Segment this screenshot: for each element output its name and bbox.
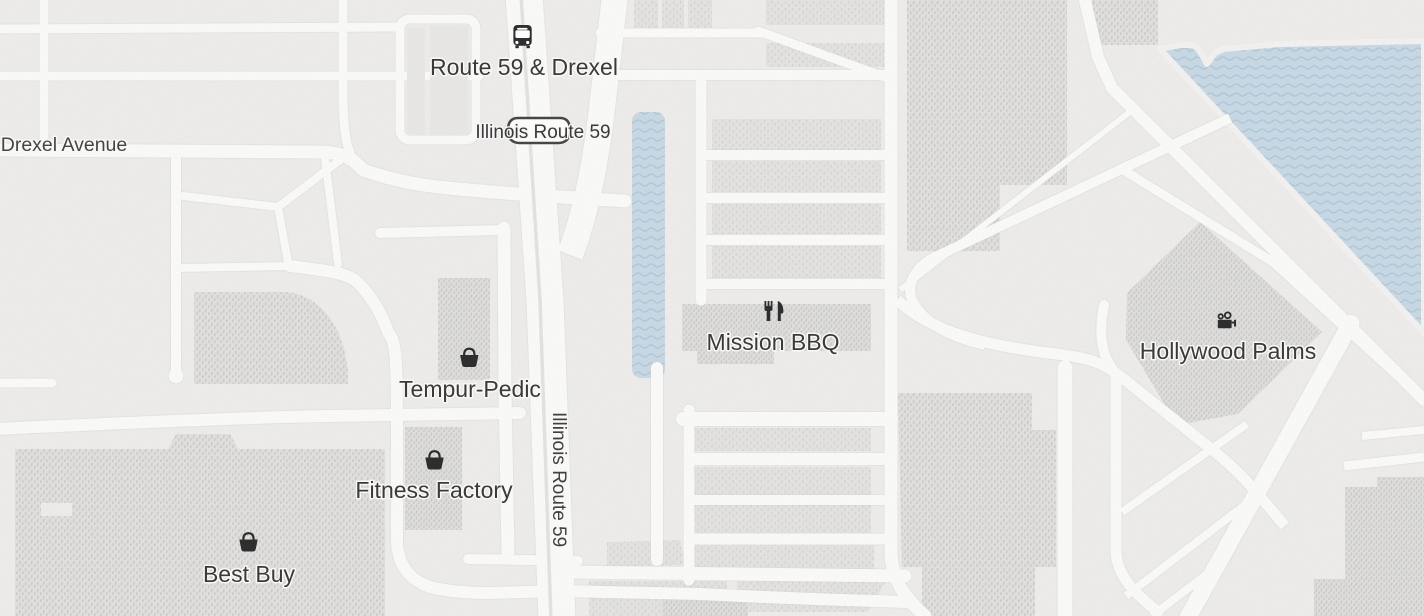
svg-text:Hollywood Palms: Hollywood Palms: [1140, 338, 1316, 364]
svg-text:Mission BBQ: Mission BBQ: [707, 329, 840, 355]
svg-text:Tempur-Pedic: Tempur-Pedic: [399, 376, 541, 402]
svg-text:Route 59 & Drexel: Route 59 & Drexel: [430, 54, 618, 80]
svg-text:Illinois Route 59: Illinois Route 59: [475, 122, 610, 143]
svg-text:Best Buy: Best Buy: [203, 561, 296, 587]
svg-text:Illinois Route 59: Illinois Route 59: [548, 412, 569, 547]
svg-text:Fitness Factory: Fitness Factory: [355, 477, 513, 503]
svg-text:Drexel Avenue: Drexel Avenue: [1, 134, 127, 156]
